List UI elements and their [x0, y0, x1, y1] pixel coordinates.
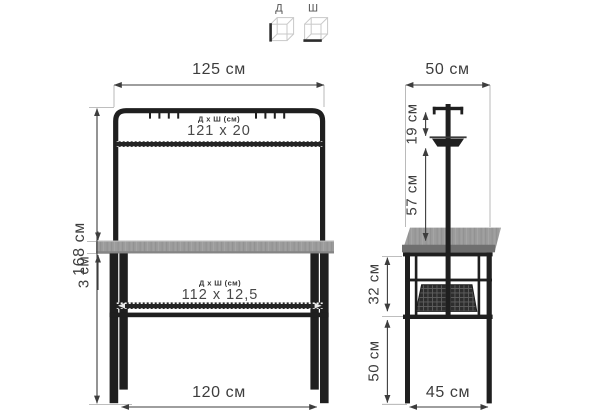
shelf-dims-value: 112 x 12,5 — [182, 287, 259, 302]
mesh-shelf-lower — [110, 302, 329, 317]
dim-side-bottom-depth: 45 см — [426, 385, 470, 401]
dim-front-top-width: 125 см — [192, 62, 246, 78]
desktop-side — [402, 228, 501, 253]
dim-desktop-thickness: 3 см — [77, 255, 92, 287]
dim-side-top-depth: 50 см — [425, 62, 469, 78]
side-view-drawing — [382, 85, 501, 407]
depth-cube-icon — [271, 18, 294, 42]
table-legs-front — [110, 253, 329, 403]
hutch-dims-value: 121 x 20 — [187, 123, 251, 138]
width-cube-icon — [303, 18, 327, 41]
dim-shelf-to-floor: 50 см — [367, 340, 382, 381]
dim-front-bottom-width: 120 см — [192, 385, 246, 401]
dim-desk-to-shelf: 32 см — [367, 263, 382, 304]
mesh-shelf-top — [116, 141, 322, 147]
legend-width-letter: Ш — [308, 3, 318, 14]
legend-icons — [271, 18, 328, 42]
legend-depth-letter: Д — [275, 3, 282, 14]
furniture-dimension-drawing: Д Ш 125 см Д x Ш (см) 121 x 20 168 см 3 … — [0, 0, 600, 420]
dim-organizer-gap: 19 см — [405, 103, 420, 144]
dim-organizer-height: 57 см — [405, 174, 420, 215]
desktop-front — [96, 241, 334, 254]
drawing-linework — [0, 0, 600, 420]
